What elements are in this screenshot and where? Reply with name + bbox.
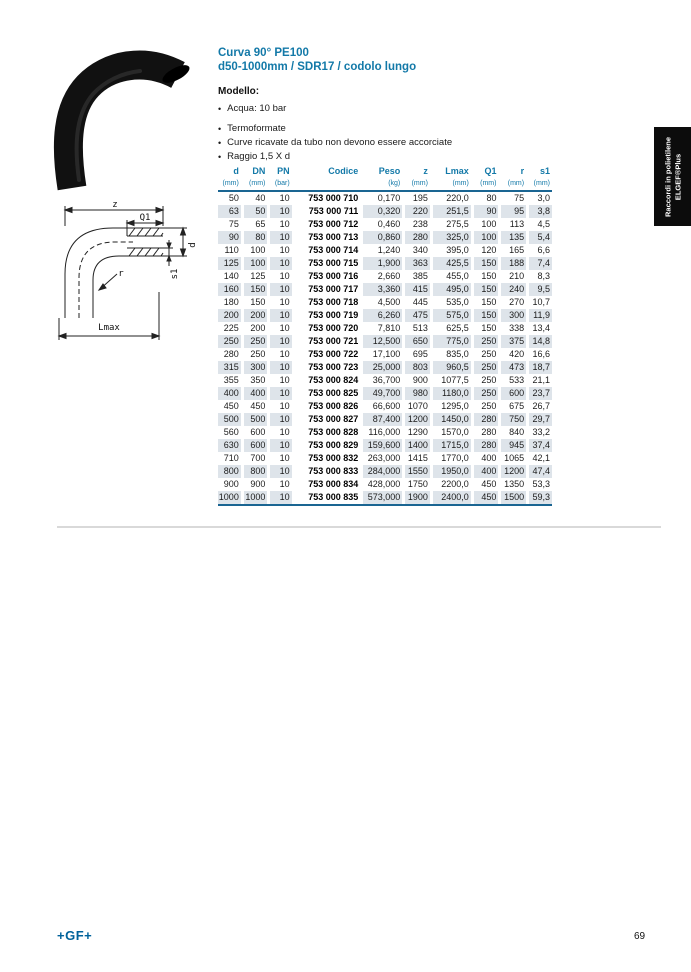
cell-codice: 753 000 715 bbox=[293, 257, 362, 270]
cell: 250 bbox=[472, 361, 500, 374]
cell: 1290 bbox=[404, 426, 432, 439]
cell: 200 bbox=[242, 309, 269, 322]
cell: 450 bbox=[472, 491, 500, 504]
bullet-icon: • bbox=[218, 151, 221, 163]
cell: 251,5 bbox=[431, 205, 472, 218]
cell: 10 bbox=[269, 322, 293, 335]
cell: 385 bbox=[404, 270, 432, 283]
cell: 495,0 bbox=[431, 283, 472, 296]
cell-codice: 753 000 825 bbox=[293, 387, 362, 400]
cell: 1077,5 bbox=[431, 374, 472, 387]
cell: 700 bbox=[242, 452, 269, 465]
table-row: 80080010753 000 833284,00015501950,04001… bbox=[218, 465, 552, 478]
table-row: 71070010753 000 832263,00014151770,04001… bbox=[218, 452, 552, 465]
cell: 53,3 bbox=[528, 478, 552, 491]
cell-codice: 753 000 711 bbox=[293, 205, 362, 218]
cell: 445 bbox=[404, 296, 432, 309]
cell: 113 bbox=[500, 218, 528, 231]
page-title: Curva 90° PE100 bbox=[218, 46, 416, 60]
cell: 10 bbox=[269, 283, 293, 296]
modello-bullet: •Acqua: 10 bar bbox=[218, 103, 578, 115]
cell: 500 bbox=[218, 413, 242, 426]
cell: 1200 bbox=[404, 413, 432, 426]
hatch-top bbox=[129, 228, 163, 236]
cell: 900 bbox=[242, 478, 269, 491]
cell: 0,170 bbox=[362, 192, 404, 205]
cell: 21,1 bbox=[528, 374, 552, 387]
cell: 600 bbox=[242, 439, 269, 452]
cell: 400 bbox=[472, 465, 500, 478]
cell: 4,500 bbox=[362, 296, 404, 309]
cell: 428,000 bbox=[362, 478, 404, 491]
cell: 284,000 bbox=[362, 465, 404, 478]
cell: 250 bbox=[242, 335, 269, 348]
cell: 47,4 bbox=[528, 465, 552, 478]
cell: 1950,0 bbox=[431, 465, 472, 478]
cell: 10 bbox=[269, 218, 293, 231]
cell: 1180,0 bbox=[431, 387, 472, 400]
table-row: 35535010753 000 82436,7009001077,5250533… bbox=[218, 374, 552, 387]
bullet-text: Termoformate bbox=[227, 123, 286, 135]
cell: 135 bbox=[500, 231, 528, 244]
cell: 2400,0 bbox=[431, 491, 472, 504]
chapter-tab: Raccordi in polietilene ELGEF®Plus bbox=[654, 127, 691, 226]
cell: 188 bbox=[500, 257, 528, 270]
page-subtitle: d50-1000mm / SDR17 / codolo lungo bbox=[218, 60, 416, 74]
col-unit-pn: (bar) bbox=[269, 178, 293, 190]
chapter-tab-line2: ELGEF®Plus bbox=[673, 129, 683, 225]
cell: 10 bbox=[269, 387, 293, 400]
cell-codice: 753 000 712 bbox=[293, 218, 362, 231]
table-row: 56060010753 000 828116,00012901570,02808… bbox=[218, 426, 552, 439]
cell: 900 bbox=[218, 478, 242, 491]
cell: 200 bbox=[218, 309, 242, 322]
cell: 150 bbox=[242, 296, 269, 309]
table-header: dDNPNCodicePesozLmaxQ1rs1(mm)(mm)(bar)(k… bbox=[218, 163, 552, 192]
cell: 240 bbox=[500, 283, 528, 296]
cell: 280 bbox=[472, 439, 500, 452]
table-row: 635010753 000 7110,320220251,590953,8 bbox=[218, 205, 552, 218]
cell: 533 bbox=[500, 374, 528, 387]
cell-codice: 753 000 716 bbox=[293, 270, 362, 283]
cell: 90 bbox=[218, 231, 242, 244]
cell: 160 bbox=[218, 283, 242, 296]
col-unit-s1: (mm) bbox=[528, 178, 552, 190]
table-row: 756510753 000 7120,460238275,51001134,5 bbox=[218, 218, 552, 231]
cell: 340 bbox=[404, 244, 432, 257]
cell: 49,700 bbox=[362, 387, 404, 400]
cell: 10 bbox=[269, 309, 293, 322]
table-row: 40040010753 000 82549,7009801180,0250600… bbox=[218, 387, 552, 400]
cell: 250 bbox=[472, 335, 500, 348]
cell: 395,0 bbox=[431, 244, 472, 257]
cell: 803 bbox=[404, 361, 432, 374]
cell: 150 bbox=[242, 283, 269, 296]
cell: 42,1 bbox=[528, 452, 552, 465]
cell: 275,5 bbox=[431, 218, 472, 231]
cell: 10 bbox=[269, 426, 293, 439]
cell: 80 bbox=[472, 192, 500, 205]
cell: 280 bbox=[218, 348, 242, 361]
cell: 575,0 bbox=[431, 309, 472, 322]
cell: 125 bbox=[218, 257, 242, 270]
gf-logo: +GF+ bbox=[57, 928, 92, 943]
col-unit-r: (mm) bbox=[500, 178, 528, 190]
cell: 3,8 bbox=[528, 205, 552, 218]
table-row: 1000100010753 000 835573,00019002400,045… bbox=[218, 491, 552, 504]
cell: 18,7 bbox=[528, 361, 552, 374]
table-row: 20020010753 000 7196,260475575,015030011… bbox=[218, 309, 552, 322]
cell: 300 bbox=[500, 309, 528, 322]
cell: 1000 bbox=[218, 491, 242, 504]
cell-codice: 753 000 718 bbox=[293, 296, 362, 309]
cell: 363 bbox=[404, 257, 432, 270]
hatch-bottom bbox=[129, 248, 163, 256]
cell: 1750 bbox=[404, 478, 432, 491]
modello-heading: Modello: bbox=[218, 86, 578, 97]
cell: 87,400 bbox=[362, 413, 404, 426]
cell: 1,900 bbox=[362, 257, 404, 270]
cell: 250 bbox=[472, 348, 500, 361]
cell: 355 bbox=[218, 374, 242, 387]
cell: 960,5 bbox=[431, 361, 472, 374]
cell: 0,320 bbox=[362, 205, 404, 218]
cell: 10 bbox=[269, 439, 293, 452]
cell: 2,660 bbox=[362, 270, 404, 283]
cell: 450 bbox=[242, 400, 269, 413]
cell-codice: 753 000 717 bbox=[293, 283, 362, 296]
cell: 9,5 bbox=[528, 283, 552, 296]
cell: 150 bbox=[472, 322, 500, 335]
cell: 25,000 bbox=[362, 361, 404, 374]
cell: 23,7 bbox=[528, 387, 552, 400]
cell: 338 bbox=[500, 322, 528, 335]
cell: 50 bbox=[218, 192, 242, 205]
cell: 37,4 bbox=[528, 439, 552, 452]
cell: 5,4 bbox=[528, 231, 552, 244]
table-row: 50050010753 000 82787,40012001450,028075… bbox=[218, 413, 552, 426]
cell: 7,810 bbox=[362, 322, 404, 335]
table-row: 45045010753 000 82666,60010701295,025067… bbox=[218, 400, 552, 413]
cell-codice: 753 000 827 bbox=[293, 413, 362, 426]
cell: 455,0 bbox=[431, 270, 472, 283]
cell-codice: 753 000 722 bbox=[293, 348, 362, 361]
cell: 1550 bbox=[404, 465, 432, 478]
product-photo-elbow bbox=[48, 42, 206, 200]
cell: 10 bbox=[269, 465, 293, 478]
col-header-codice: Codice bbox=[293, 163, 362, 178]
bullet-text: Raggio 1,5 X d bbox=[227, 151, 290, 163]
label-s1: s1 bbox=[170, 269, 180, 280]
product-table-wrap: dDNPNCodicePesozLmaxQ1rs1(mm)(mm)(bar)(k… bbox=[218, 163, 554, 506]
cell: 280 bbox=[404, 231, 432, 244]
cell: 75 bbox=[500, 192, 528, 205]
cell: 250 bbox=[472, 400, 500, 413]
table-row: 18015010753 000 7184,500445535,015027010… bbox=[218, 296, 552, 309]
cell: 100 bbox=[472, 218, 500, 231]
cell: 29,7 bbox=[528, 413, 552, 426]
modello-bullet: •Curve ricavate da tubo non devono esser… bbox=[218, 137, 578, 149]
cell-codice: 753 000 832 bbox=[293, 452, 362, 465]
cell: 710 bbox=[218, 452, 242, 465]
cell-codice: 753 000 824 bbox=[293, 374, 362, 387]
cell: 513 bbox=[404, 322, 432, 335]
cell: 840 bbox=[500, 426, 528, 439]
cell: 2200,0 bbox=[431, 478, 472, 491]
cell: 10 bbox=[269, 491, 293, 504]
cell: 280 bbox=[472, 413, 500, 426]
table-bottom-rule bbox=[218, 504, 552, 506]
cell: 125 bbox=[242, 270, 269, 283]
cell: 650 bbox=[404, 335, 432, 348]
elbow-body bbox=[68, 65, 178, 188]
label-r: r bbox=[118, 269, 124, 279]
cell: 600 bbox=[500, 387, 528, 400]
cell: 195 bbox=[404, 192, 432, 205]
cell: 1715,0 bbox=[431, 439, 472, 452]
cell: 675 bbox=[500, 400, 528, 413]
cell: 3,360 bbox=[362, 283, 404, 296]
cell: 10 bbox=[269, 296, 293, 309]
cell: 300 bbox=[242, 361, 269, 374]
cell: 1400 bbox=[404, 439, 432, 452]
cell: 900 bbox=[404, 374, 432, 387]
modello-bullet: •Raggio 1,5 X d bbox=[218, 151, 578, 163]
table-row: 16015010753 000 7173,360415495,01502409,… bbox=[218, 283, 552, 296]
cell: 100 bbox=[242, 244, 269, 257]
table-row: 25025010753 000 72112,500650775,02503751… bbox=[218, 335, 552, 348]
cell: 59,3 bbox=[528, 491, 552, 504]
cell: 95 bbox=[500, 205, 528, 218]
cell-codice: 753 000 835 bbox=[293, 491, 362, 504]
cell: 945 bbox=[500, 439, 528, 452]
cell: 1770,0 bbox=[431, 452, 472, 465]
cell-codice: 753 000 826 bbox=[293, 400, 362, 413]
cell: 90 bbox=[472, 205, 500, 218]
cell: 10 bbox=[269, 205, 293, 218]
cell: 500 bbox=[242, 413, 269, 426]
cell: 1350 bbox=[500, 478, 528, 491]
cell: 270 bbox=[500, 296, 528, 309]
cell: 63 bbox=[218, 205, 242, 218]
modello-section: Modello: •Acqua: 10 bar•Termoformate•Cur… bbox=[218, 86, 578, 165]
cell: 150 bbox=[472, 283, 500, 296]
col-unit-q1: (mm) bbox=[472, 178, 500, 190]
cell: 36,700 bbox=[362, 374, 404, 387]
cell: 10 bbox=[269, 192, 293, 205]
cell: 280 bbox=[472, 426, 500, 439]
col-header-peso: Peso bbox=[362, 163, 404, 178]
cell: 140 bbox=[218, 270, 242, 283]
col-unit-peso: (kg) bbox=[362, 178, 404, 190]
cell: 40 bbox=[242, 192, 269, 205]
cell: 315 bbox=[218, 361, 242, 374]
cell: 50 bbox=[242, 205, 269, 218]
cell: 250 bbox=[472, 387, 500, 400]
cell: 16,6 bbox=[528, 348, 552, 361]
cell: 1295,0 bbox=[431, 400, 472, 413]
cell: 1065 bbox=[500, 452, 528, 465]
cell: 10 bbox=[269, 335, 293, 348]
cell: 10 bbox=[269, 361, 293, 374]
cell: 110 bbox=[218, 244, 242, 257]
cell: 100 bbox=[472, 231, 500, 244]
cell: 535,0 bbox=[431, 296, 472, 309]
cell: 263,000 bbox=[362, 452, 404, 465]
cell: 473 bbox=[500, 361, 528, 374]
table-row: 11010010753 000 7141,240340395,01201656,… bbox=[218, 244, 552, 257]
table-row: 28025010753 000 72217,100695835,02504201… bbox=[218, 348, 552, 361]
technical-diagram: z Q1 d s1 r Lmax bbox=[55, 196, 207, 348]
cell: 750 bbox=[500, 413, 528, 426]
cell: 26,7 bbox=[528, 400, 552, 413]
cell: 325,0 bbox=[431, 231, 472, 244]
cell: 250 bbox=[218, 335, 242, 348]
elbow-outer-line bbox=[65, 228, 163, 318]
modello-bullet-list: •Acqua: 10 bar•Termoformate•Curve ricava… bbox=[218, 103, 578, 163]
cell: 10 bbox=[269, 231, 293, 244]
cell: 66,600 bbox=[362, 400, 404, 413]
title-block: Curva 90° PE100 d50-1000mm / SDR17 / cod… bbox=[218, 46, 416, 74]
table-body: 504010753 000 7100,170195220,080753,0635… bbox=[218, 192, 552, 506]
cell: 220 bbox=[404, 205, 432, 218]
label-d: d bbox=[188, 242, 198, 247]
cell: 450 bbox=[218, 400, 242, 413]
table-row: 14012510753 000 7162,660385455,01502108,… bbox=[218, 270, 552, 283]
cell: 225 bbox=[218, 322, 242, 335]
cell: 0,860 bbox=[362, 231, 404, 244]
cell: 10 bbox=[269, 452, 293, 465]
table-row: 31530010753 000 72325,000803960,52504731… bbox=[218, 361, 552, 374]
bullet-icon: • bbox=[218, 137, 221, 149]
bullet-text: Acqua: 10 bar bbox=[227, 103, 286, 115]
cell: 375 bbox=[500, 335, 528, 348]
bullet-icon: • bbox=[218, 103, 221, 115]
cell: 3,0 bbox=[528, 192, 552, 205]
table-row: 90090010753 000 834428,00017502200,04501… bbox=[218, 478, 552, 491]
cell: 10 bbox=[269, 348, 293, 361]
cell: 1500 bbox=[500, 491, 528, 504]
cell: 238 bbox=[404, 218, 432, 231]
cell: 150 bbox=[472, 257, 500, 270]
cell-codice: 753 000 720 bbox=[293, 322, 362, 335]
cell: 116,000 bbox=[362, 426, 404, 439]
cell-codice: 753 000 719 bbox=[293, 309, 362, 322]
cell-codice: 753 000 710 bbox=[293, 192, 362, 205]
cell: 80 bbox=[242, 231, 269, 244]
cell-codice: 753 000 833 bbox=[293, 465, 362, 478]
cell: 6,6 bbox=[528, 244, 552, 257]
col-header-r: r bbox=[500, 163, 528, 178]
cell: 630 bbox=[218, 439, 242, 452]
section-divider bbox=[57, 526, 661, 528]
cell: 75 bbox=[218, 218, 242, 231]
cell: 1070 bbox=[404, 400, 432, 413]
chapter-tab-text: Raccordi in polietilene ELGEF®Plus bbox=[663, 129, 683, 225]
cell: 420 bbox=[500, 348, 528, 361]
col-header-z: z bbox=[404, 163, 432, 178]
col-unit-d: (mm) bbox=[218, 178, 242, 190]
table-row: 12510010753 000 7151,900363425,51501887,… bbox=[218, 257, 552, 270]
cell: 250 bbox=[472, 374, 500, 387]
cell: 4,5 bbox=[528, 218, 552, 231]
cell: 800 bbox=[218, 465, 242, 478]
cell: 220,0 bbox=[431, 192, 472, 205]
cell: 200 bbox=[242, 322, 269, 335]
cell: 1200 bbox=[500, 465, 528, 478]
col-unit-z: (mm) bbox=[404, 178, 432, 190]
cell: 10 bbox=[269, 257, 293, 270]
cell: 6,260 bbox=[362, 309, 404, 322]
cell: 350 bbox=[242, 374, 269, 387]
cell: 400 bbox=[218, 387, 242, 400]
product-table: dDNPNCodicePesozLmaxQ1rs1(mm)(mm)(bar)(k… bbox=[218, 163, 552, 506]
cell: 13,4 bbox=[528, 322, 552, 335]
col-header-pn: PN bbox=[269, 163, 293, 178]
cell: 980 bbox=[404, 387, 432, 400]
cell: 425,5 bbox=[431, 257, 472, 270]
table-row: 22520010753 000 7207,810513625,515033813… bbox=[218, 322, 552, 335]
cell: 415 bbox=[404, 283, 432, 296]
cell: 180 bbox=[218, 296, 242, 309]
cell: 573,000 bbox=[362, 491, 404, 504]
cell: 10 bbox=[269, 400, 293, 413]
bullet-text: Curve ricavate da tubo non devono essere… bbox=[227, 137, 452, 149]
cell: 450 bbox=[472, 478, 500, 491]
cell: 7,4 bbox=[528, 257, 552, 270]
table-row: 63060010753 000 829159,60014001715,02809… bbox=[218, 439, 552, 452]
cell: 695 bbox=[404, 348, 432, 361]
cell-codice: 753 000 834 bbox=[293, 478, 362, 491]
cell: 33,2 bbox=[528, 426, 552, 439]
col-header-q1: Q1 bbox=[472, 163, 500, 178]
cell: 560 bbox=[218, 426, 242, 439]
elbow-centerline bbox=[79, 242, 133, 318]
cell: 10 bbox=[269, 374, 293, 387]
cell: 10 bbox=[269, 413, 293, 426]
cell: 150 bbox=[472, 296, 500, 309]
col-unit-dn: (mm) bbox=[242, 178, 269, 190]
label-lmax: Lmax bbox=[98, 323, 120, 333]
cell: 250 bbox=[242, 348, 269, 361]
cell: 835,0 bbox=[431, 348, 472, 361]
col-header-s1: s1 bbox=[528, 163, 552, 178]
chapter-tab-line1: Raccordi in polietilene bbox=[663, 129, 673, 225]
cell-codice: 753 000 714 bbox=[293, 244, 362, 257]
cell: 165 bbox=[500, 244, 528, 257]
cell: 11,9 bbox=[528, 309, 552, 322]
col-unit-codice bbox=[293, 178, 362, 190]
cell: 0,460 bbox=[362, 218, 404, 231]
col-unit-lmax: (mm) bbox=[431, 178, 472, 190]
label-z: z bbox=[112, 200, 117, 210]
cell: 10,7 bbox=[528, 296, 552, 309]
cell: 1000 bbox=[242, 491, 269, 504]
label-q1: Q1 bbox=[140, 213, 151, 223]
cell: 600 bbox=[242, 426, 269, 439]
cell: 150 bbox=[472, 309, 500, 322]
cell: 17,100 bbox=[362, 348, 404, 361]
cell: 475 bbox=[404, 309, 432, 322]
col-header-lmax: Lmax bbox=[431, 163, 472, 178]
cell: 625,5 bbox=[431, 322, 472, 335]
cell-codice: 753 000 713 bbox=[293, 231, 362, 244]
cell: 1,240 bbox=[362, 244, 404, 257]
table-row: 504010753 000 7100,170195220,080753,0 bbox=[218, 192, 552, 205]
col-header-d: d bbox=[218, 163, 242, 178]
cell-codice: 753 000 723 bbox=[293, 361, 362, 374]
cell: 400 bbox=[242, 387, 269, 400]
